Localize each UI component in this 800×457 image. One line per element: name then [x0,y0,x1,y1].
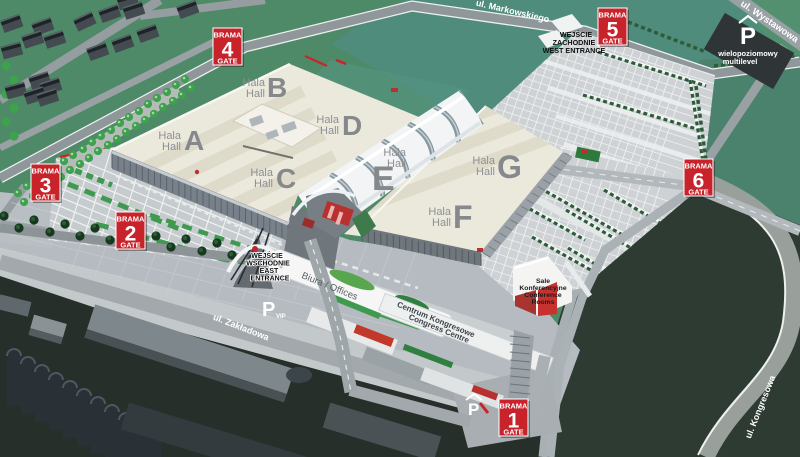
svg-text:WEST ENTRANCE: WEST ENTRANCE [543,46,606,55]
svg-text:GATE: GATE [120,241,140,250]
svg-text:GATE: GATE [602,37,622,46]
svg-text:GATE: GATE [35,193,55,202]
svg-text:Hall: Hall [432,217,451,229]
svg-text:Hall: Hall [162,141,181,153]
svg-text:GATE: GATE [688,188,708,197]
svg-text:Hall: Hall [320,125,339,137]
svg-text:G: G [497,149,522,185]
svg-text:Conference: Conference [524,292,562,299]
svg-text:Rooms: Rooms [531,299,554,306]
svg-text:EAST: EAST [260,268,279,275]
svg-text:D: D [342,110,362,141]
svg-text:VIP: VIP [276,314,286,320]
svg-text:Hall: Hall [246,88,265,100]
svg-text:WSCHODNIE: WSCHODNIE [246,261,290,268]
svg-text:Hall: Hall [254,178,273,190]
svg-text:B: B [267,72,287,103]
svg-text:P: P [740,23,756,50]
svg-text:A: A [184,125,204,156]
svg-text:GATE: GATE [503,428,523,437]
svg-text:WEJŚCIE: WEJŚCIE [251,251,283,260]
svg-text:Sale: Sale [536,278,550,285]
svg-text:ENTRANCE: ENTRANCE [251,276,290,283]
svg-text:C: C [276,163,296,194]
svg-text:multilevel: multilevel [723,57,758,66]
svg-text:E: E [372,160,395,198]
svg-text:P: P [262,299,275,321]
svg-text:Konferencyjne: Konferencyjne [519,285,566,292]
svg-text:P: P [468,400,479,419]
svg-text:GATE: GATE [217,57,237,66]
svg-text:Hall: Hall [476,166,495,178]
svg-text:F: F [453,199,473,235]
